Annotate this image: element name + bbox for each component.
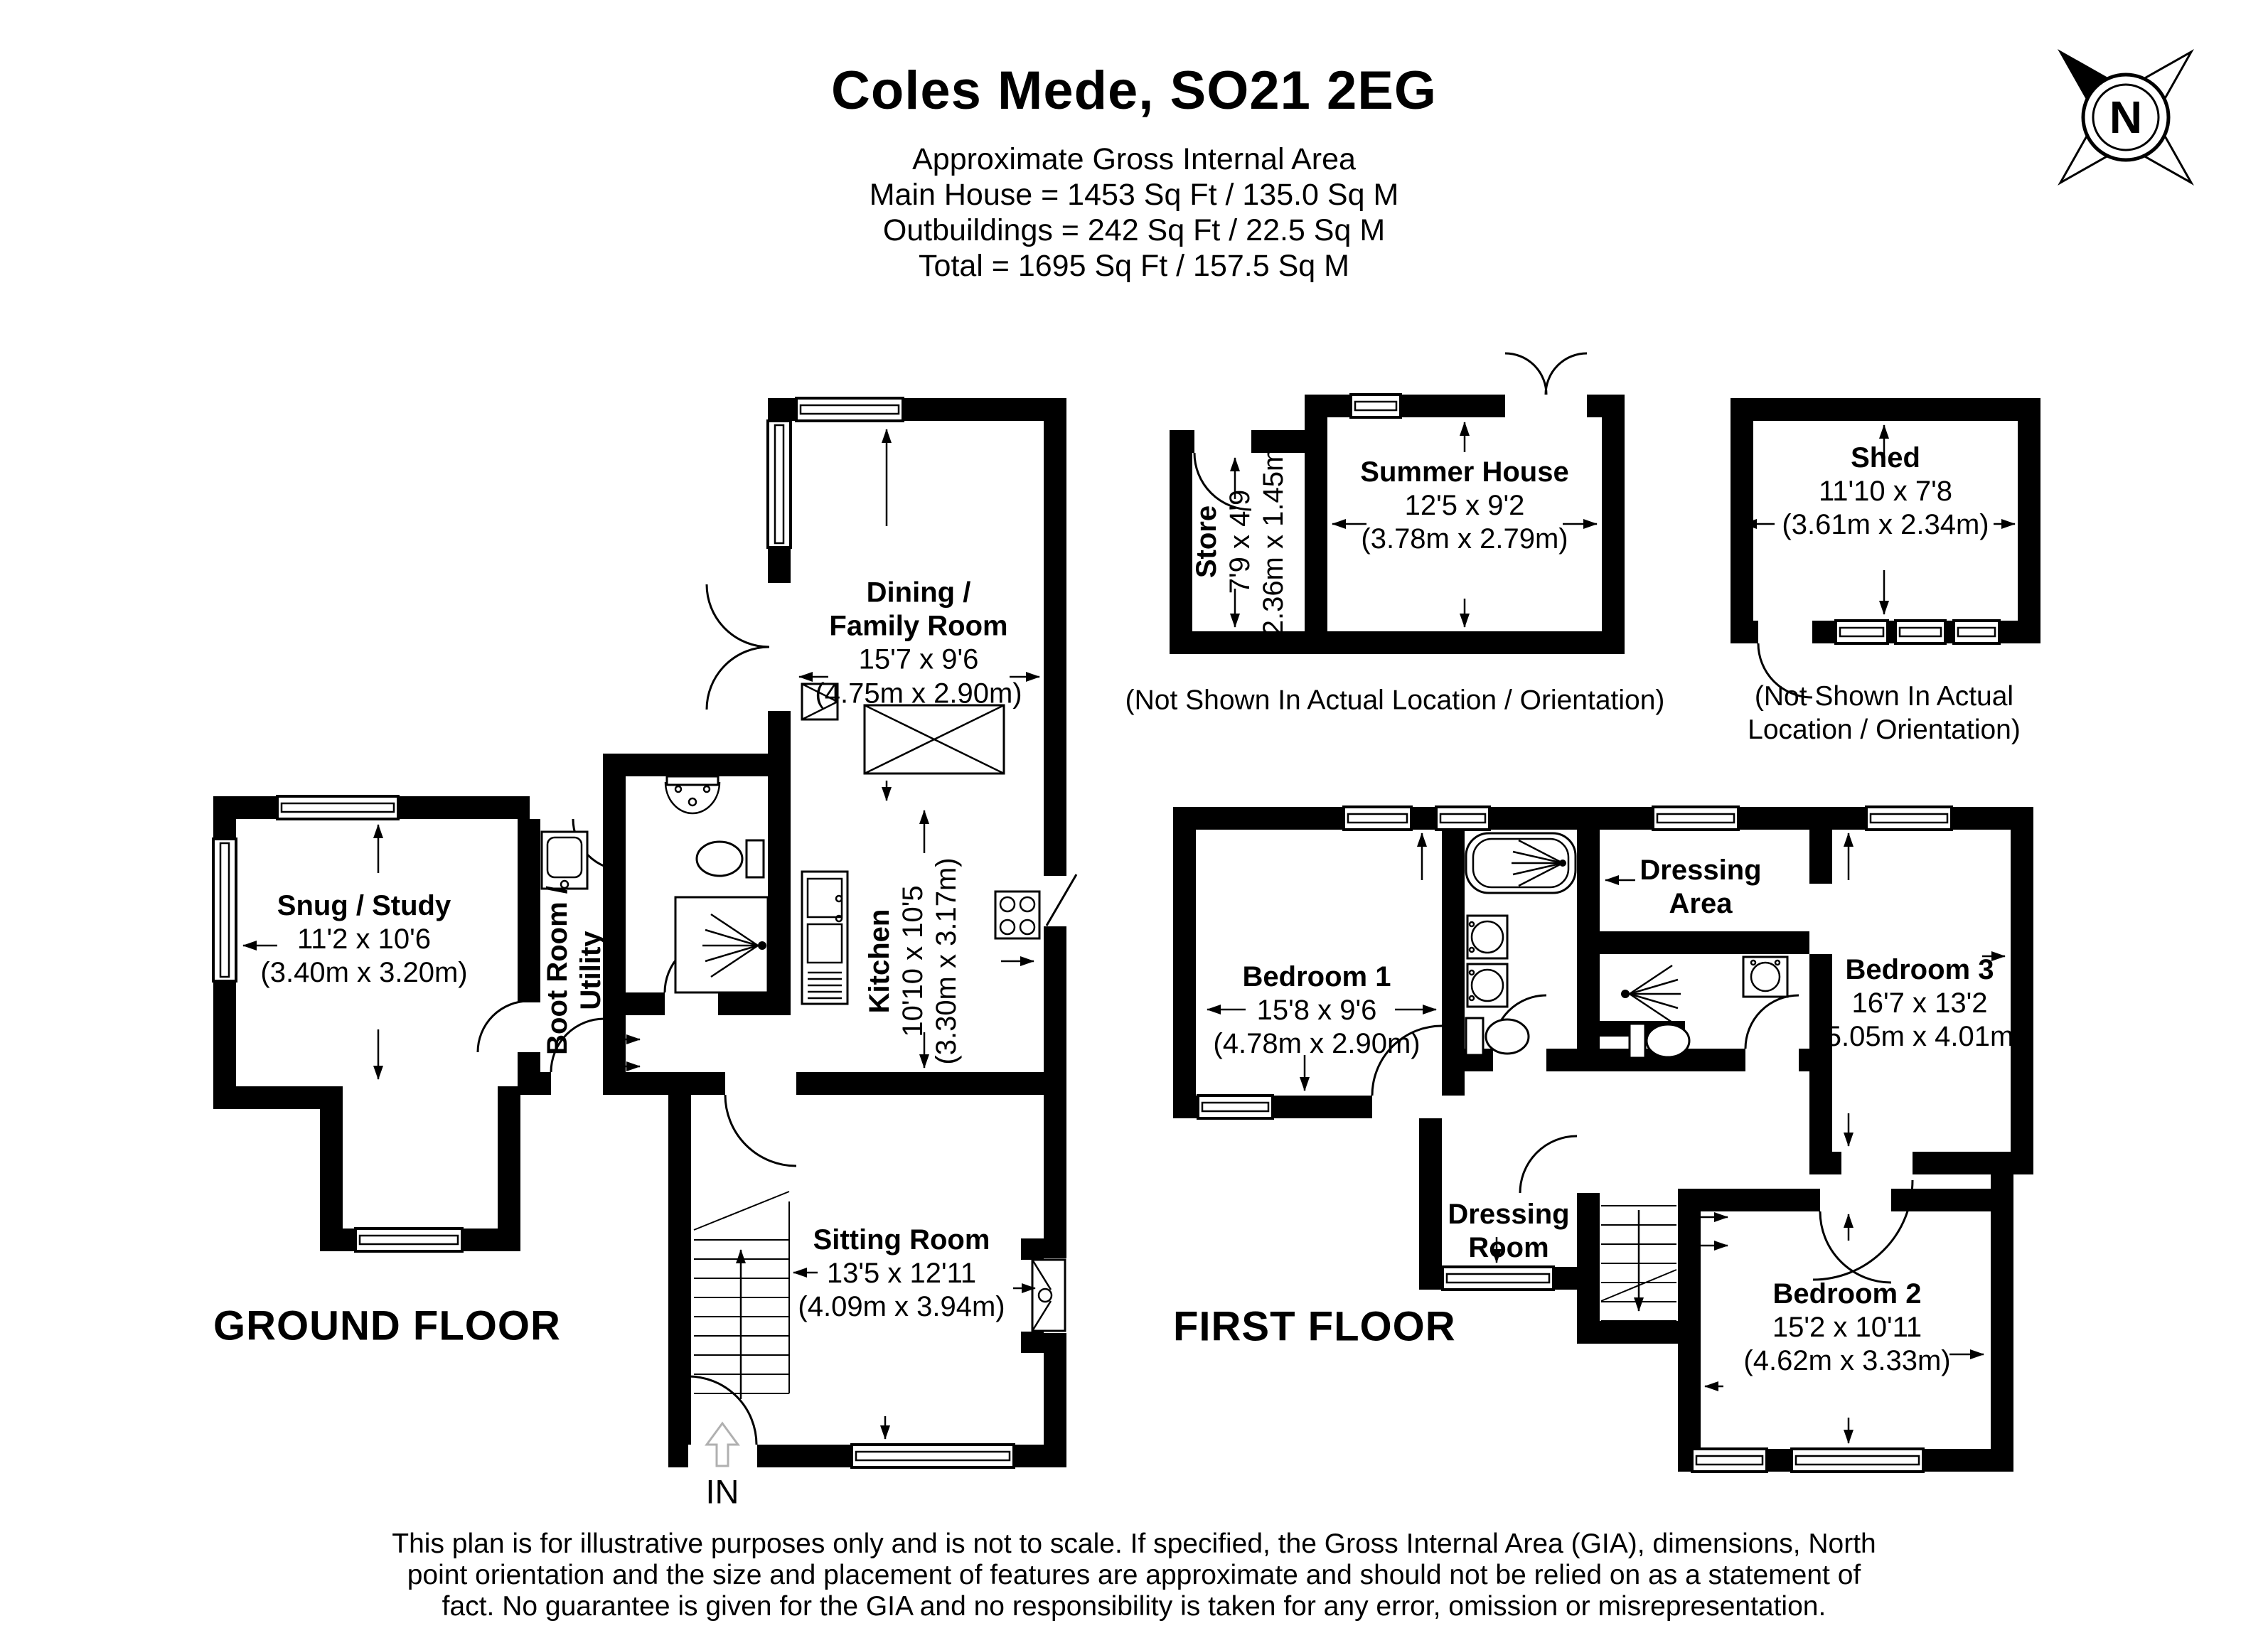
sink-icon [1467,964,1507,1007]
room-name: Dressing [1448,1199,1569,1230]
fireplace-icon [1032,1260,1065,1331]
kitchen-sink-icon [802,872,847,1004]
shower-icon [675,897,768,992]
door-arc [1820,1211,1891,1283]
entrance-in-label: IN [706,1472,739,1511]
hob-icon [995,892,1039,938]
room-size-imperial: 16'7 x 13'2 [1852,987,1988,1019]
sink-icon [665,776,720,813]
disclaimer: This plan is for illustrative purposes o… [392,1529,1876,1622]
room-size-imperial: 10'10 x 10'5 [897,885,929,1037]
room-size-imperial: 7'9 x 4'9 [1224,490,1256,594]
room-name: Bedroom 1 [1243,961,1391,992]
door-leaf [1047,874,1076,926]
french-door-arc [707,584,769,647]
room-size-metric: (5.05m x 4.01m) [1816,1022,2023,1053]
window-icon [1954,621,1999,643]
room-name: Sitting Room [813,1224,990,1256]
door-arc [1520,1136,1577,1193]
room-size-imperial: 13'5 x 12'11 [827,1258,976,1289]
room-name: Boot Room / [542,886,573,1055]
room-size-metric: (3.61m x 2.34m) [1782,510,1989,541]
gia-total: Total = 1695 Sq Ft / 157.5 Sq M [831,248,1437,284]
sink-icon [1467,916,1507,958]
toilet-icon [1466,1018,1529,1055]
window-icon [852,1445,1014,1467]
gross-internal-area-summary: Approximate Gross Internal Area Main Hou… [831,141,1437,284]
shed-caption-line1: (Not Shown In Actual [1755,681,2013,712]
room-name: Snug / Study [277,890,451,921]
door-arc [1505,353,1546,395]
room-label-dressing-room: Dressing Room [1448,1198,1569,1265]
window-icon [1436,807,1489,830]
bath-icon [1466,833,1576,893]
toilet-icon [1630,1024,1689,1058]
room-label-bedroom3: Bedroom 3 16'7 x 13'2 (5.05m x 4.01m) [1816,953,2023,1054]
window-icon [1443,1267,1553,1290]
window-icon [1351,395,1401,417]
window-icon [1836,621,1888,643]
room-label-boot-room-utility: Boot Room / Utility [541,886,608,1055]
room-name: Kitchen [864,909,895,1014]
entrance-door-arc [688,1376,756,1445]
shed-caption: (Not Shown In Actual Location / Orientat… [1748,680,2021,747]
room-label-summer-house: Summer House 12'5 x 9'2 (3.78m x 2.79m) [1360,456,1568,557]
gia-main-house: Main House = 1453 Sq Ft / 135.0 Sq M [831,177,1437,213]
room-size-metric: (4.62m x 3.33m) [1743,1346,1950,1377]
entrance-in-arrow-icon [707,1423,738,1466]
room-size-metric: (3.30m x 3.17m) [931,857,963,1064]
room-size-imperial: 12'5 x 9'2 [1405,490,1525,521]
room-name: Family Room [829,611,1007,642]
room-name: Shed [1851,442,1920,473]
page-title: Coles Mede, SO21 2EG [831,60,1437,122]
door-arc [1745,995,1799,1049]
room-name: Room [1468,1232,1548,1263]
window-icon [1895,621,1945,643]
room-label-dressing-area: Dressing Area [1640,854,1761,921]
room-size-imperial: 15'8 x 9'6 [1257,995,1377,1026]
compass-north-label: N [2109,91,2142,144]
room-label-dining-family: Dining / Family Room 15'7 x 9'6 (4.75m x… [815,577,1022,711]
room-size-metric: (4.75m x 2.90m) [815,678,1022,709]
room-label-snug-study: Snug / Study 11'2 x 10'6 (3.40m x 3.20m) [260,889,467,990]
shower-icon [1621,965,1681,1022]
room-size-imperial: 11'2 x 10'6 [297,924,431,955]
sink-icon [1743,957,1787,997]
room-size-metric: (3.40m x 3.20m) [260,958,467,989]
room-name: Store [1191,505,1222,578]
shed-caption-line2: Location / Orientation) [1748,714,2021,745]
room-size-imperial: 15'2 x 10'11 [1772,1312,1922,1343]
room-label-store: Store 7'9 x 4'9 (2.36m x 1.45m) [1190,438,1291,645]
window-icon [796,398,903,421]
room-name: Dressing [1640,855,1761,886]
door-arc [725,1095,796,1166]
room-name: Dining / [867,577,971,609]
door-arc [1546,353,1587,395]
room-label-kitchen: Kitchen 10'10 x 10'5 (3.30m x 3.17m) [863,857,964,1064]
room-label-sitting-room: Sitting Room 13'5 x 12'11 (4.09m x 3.94m… [798,1224,1005,1324]
summer-house-caption: (Not Shown In Actual Location / Orientat… [1125,685,1665,718]
window-icon [1792,1449,1923,1472]
french-door-arc [707,647,769,710]
window-icon [1344,807,1411,830]
room-label-shed: Shed 11'10 x 7'8 (3.61m x 2.34m) [1782,441,1989,542]
ground-floor-title: GROUND FLOOR [213,1302,561,1350]
room-name: Bedroom 2 [1773,1278,1922,1310]
plan-header: Coles Mede, SO21 2EG Approximate Gross I… [831,60,1437,284]
window-icon [1692,1449,1767,1472]
room-label-bedroom1: Bedroom 1 15'8 x 9'6 (4.78m x 2.90m) [1213,960,1420,1061]
gia-outbuildings: Outbuildings = 242 Sq Ft / 22.5 Sq M [831,213,1437,248]
room-name: Area [1669,888,1733,919]
room-size-metric: (3.78m x 2.79m) [1361,524,1568,555]
window-icon [1198,1096,1273,1118]
disclaimer-line3: fact. No guarantee is given for the GIA … [392,1591,1876,1622]
room-size-imperial: 11'10 x 7'8 [1819,476,1952,507]
floor-plan-page: Coles Mede, SO21 2EG Approximate Gross I… [0,0,2268,1638]
room-size-metric: (4.09m x 3.94m) [798,1292,1005,1323]
window-icon [277,796,398,819]
disclaimer-line2: point orientation and the size and place… [392,1560,1876,1591]
window-icon [355,1228,462,1251]
window-icon [1866,807,1952,830]
disclaimer-line1: This plan is for illustrative purposes o… [392,1529,1876,1560]
window-icon [213,839,236,981]
first-floor-title: FIRST FLOOR [1173,1303,1456,1351]
room-size-imperial: 15'7 x 9'6 [859,644,979,675]
window-icon [1653,807,1738,830]
room-size-metric: (4.78m x 2.90m) [1213,1029,1420,1060]
room-size-metric: (2.36m x 1.45m) [1258,438,1290,645]
window-icon [768,421,791,547]
room-name: Bedroom 3 [1846,954,1994,985]
room-label-bedroom2: Bedroom 2 15'2 x 10'11 (4.62m x 3.33m) [1743,1278,1950,1379]
table-icon [865,705,1004,773]
toilet-icon [697,840,764,877]
utility-sink-icon [542,832,587,889]
room-name: Summer House [1360,456,1568,488]
room-name: Utility [575,931,606,1010]
gia-heading: Approximate Gross Internal Area [831,141,1437,177]
door-arc [478,1001,529,1052]
